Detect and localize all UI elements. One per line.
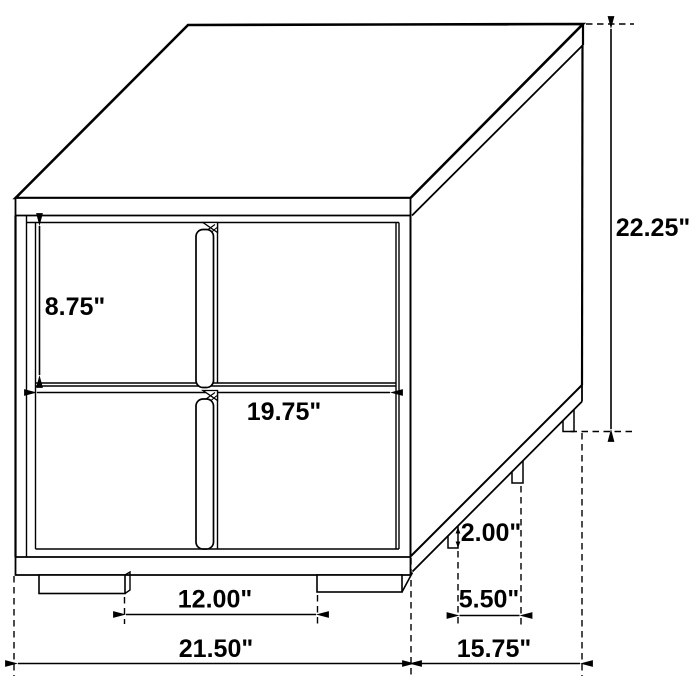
plinth-front xyxy=(16,557,411,575)
overall-height-label: 22.25" xyxy=(616,214,690,242)
dim-side-foot-spacing: 5.50" xyxy=(458,486,521,625)
nightstand-line-drawing: 19.75" 22.25" 8.75" xyxy=(0,0,700,700)
dim-overall-height: 22.25" xyxy=(571,24,691,432)
overall-width-label: 21.50" xyxy=(179,635,253,663)
foot-height-label: 2.00" xyxy=(461,519,522,547)
top-surface xyxy=(16,24,584,198)
left-leg-face xyxy=(39,575,125,594)
handle-bar-top xyxy=(196,230,214,388)
bottom-drawer-handle xyxy=(196,391,218,550)
dim-foot-height: 2.00" xyxy=(456,519,522,548)
dim-front-foot-spacing: 12.00" xyxy=(125,586,318,625)
side-foot-rear xyxy=(563,410,574,432)
foot-height-arrow-down xyxy=(456,542,461,549)
dimension-drawing-canvas: 19.75" 22.25" 8.75" xyxy=(0,0,700,700)
drawer-divider xyxy=(36,383,397,386)
side-foot-front xyxy=(448,526,458,548)
side-rear-edge xyxy=(582,45,583,385)
side-foot-middle xyxy=(512,461,523,483)
top-drawer-handle xyxy=(196,223,218,388)
overall-depth-label: 15.75" xyxy=(457,635,531,663)
right-leg-face xyxy=(317,575,402,592)
drawer-right-edge xyxy=(396,223,399,550)
drawer-height-label: 8.75" xyxy=(45,293,106,321)
top-edge-front xyxy=(16,198,411,216)
front-right-leg xyxy=(317,573,413,593)
dim-drawer-height: 8.75" xyxy=(40,226,106,375)
side-foot-spacing-label: 5.50" xyxy=(459,586,520,614)
drawer-width-label: 19.75" xyxy=(247,398,321,426)
top-panel xyxy=(16,24,584,216)
front-left-leg xyxy=(39,572,130,594)
front-foot-spacing-label: 12.00" xyxy=(178,586,252,614)
handle-bar-bottom xyxy=(196,399,214,549)
